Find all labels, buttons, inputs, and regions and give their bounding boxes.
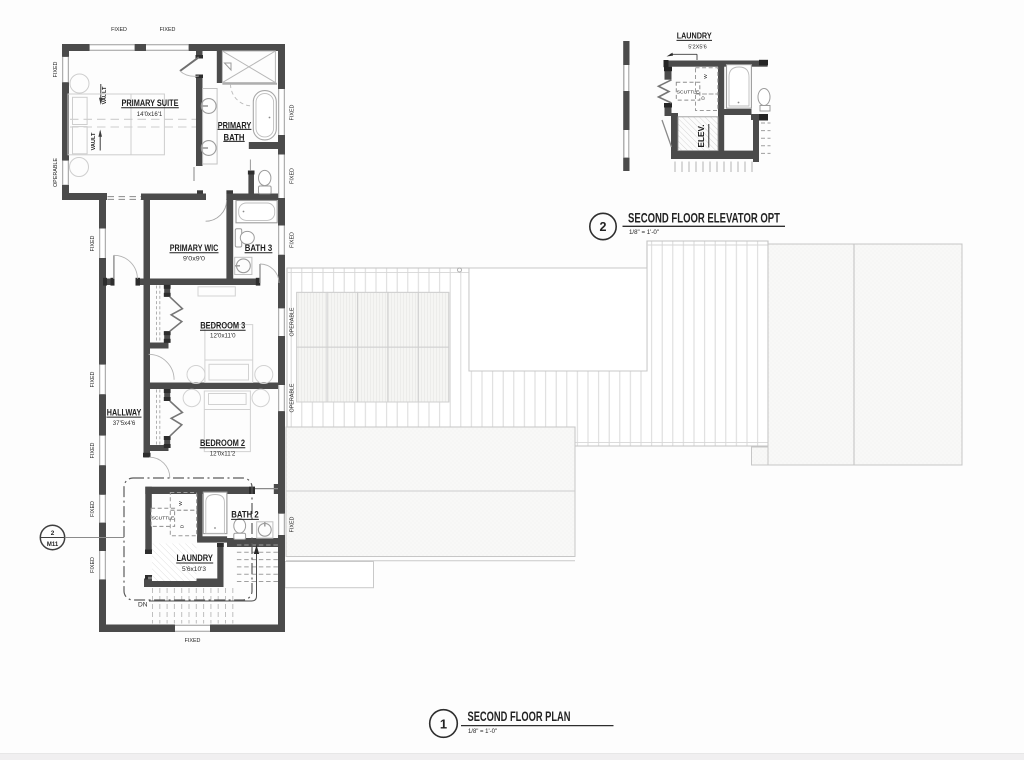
svg-text:FIXED: FIXED: [160, 27, 176, 33]
svg-text:BEDROOM 2: BEDROOM 2: [200, 438, 245, 448]
svg-text:FIXED: FIXED: [290, 104, 296, 120]
svg-text:12'0x11'2: 12'0x11'2: [210, 450, 236, 457]
svg-text:2: 2: [600, 220, 607, 234]
svg-text:FIXED: FIXED: [111, 27, 127, 33]
svg-text:LAUNDRY: LAUNDRY: [677, 32, 712, 41]
svg-text:BATH 3: BATH 3: [245, 243, 273, 253]
svg-text:14'0x16'1: 14'0x16'1: [137, 111, 163, 118]
svg-text:OPERABLE: OPERABLE: [290, 307, 296, 336]
svg-text:OPERABLE: OPERABLE: [53, 158, 59, 187]
svg-text:PRIMARY SUITE: PRIMARY SUITE: [122, 98, 179, 108]
svg-text:FIXED: FIXED: [290, 232, 296, 248]
svg-text:W: W: [703, 74, 709, 79]
svg-text:VAULT: VAULT: [91, 132, 97, 150]
svg-text:FIXED: FIXED: [90, 371, 96, 387]
svg-text:ELEV.: ELEV.: [697, 125, 706, 148]
svg-text:FIXED: FIXED: [90, 442, 96, 458]
svg-text:12'0x11'0: 12'0x11'0: [210, 333, 236, 340]
svg-text:SCUTTLE: SCUTTLE: [677, 89, 700, 95]
svg-text:D: D: [180, 524, 186, 528]
svg-text:1/8" = 1'-0": 1/8" = 1'-0": [468, 728, 497, 735]
svg-text:FIXED: FIXED: [90, 501, 96, 517]
svg-text:2: 2: [51, 530, 55, 537]
svg-text:FIXED: FIXED: [290, 168, 296, 184]
svg-text:BEDROOM 3: BEDROOM 3: [200, 320, 245, 330]
svg-text:FIXED: FIXED: [290, 516, 296, 532]
svg-text:SECOND FLOOR ELEVATOR OPT: SECOND FLOOR ELEVATOR OPT: [628, 211, 780, 227]
svg-text:SECOND FLOOR PLAN: SECOND FLOOR PLAN: [468, 709, 571, 725]
svg-text:W: W: [178, 501, 184, 506]
svg-text:FIXED: FIXED: [90, 235, 96, 251]
svg-text:OPERABLE: OPERABLE: [290, 383, 296, 412]
svg-text:FIXED: FIXED: [185, 638, 201, 644]
svg-text:BATH: BATH: [224, 132, 245, 142]
svg-text:SCUTTLE: SCUTTLE: [152, 516, 175, 522]
svg-text:FIXED: FIXED: [53, 61, 59, 77]
svg-text:9'0x9'0: 9'0x9'0: [183, 255, 205, 262]
svg-text:1/8" = 1'-0": 1/8" = 1'-0": [629, 229, 659, 236]
svg-text:LAUNDRY: LAUNDRY: [176, 553, 213, 563]
svg-text:BATH 2: BATH 2: [231, 510, 259, 520]
svg-text:D: D: [701, 96, 707, 100]
svg-text:5'2X5'6: 5'2X5'6: [688, 45, 707, 51]
svg-text:VAULT: VAULT: [102, 86, 108, 104]
svg-text:FIXED: FIXED: [90, 557, 96, 573]
svg-text:PRIMARY: PRIMARY: [218, 120, 252, 130]
svg-text:DN: DN: [138, 603, 148, 609]
svg-text:37'5x4'6: 37'5x4'6: [113, 420, 136, 427]
svg-text:5'6x10'3: 5'6x10'3: [182, 566, 206, 573]
svg-text:1: 1: [440, 717, 447, 732]
svg-text:M11: M11: [47, 542, 59, 548]
svg-text:PRIMARY WIC: PRIMARY WIC: [170, 243, 219, 253]
svg-text:HALLWAY: HALLWAY: [107, 407, 142, 417]
